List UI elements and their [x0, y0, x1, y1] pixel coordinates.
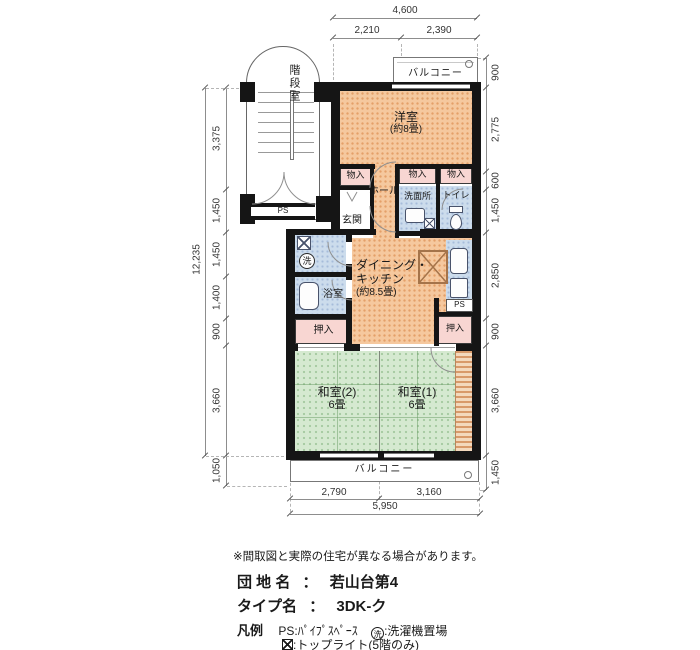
toilet-label: トイレ: [440, 190, 472, 201]
dk-line2: キッチン: [356, 272, 428, 286]
floor-plan-page: 4,600 2,210 2,390 12,235 3,375 1,450 1,4…: [0, 0, 700, 650]
stairwell-label: 階段室: [284, 52, 300, 114]
washroom-label: 洗面所: [399, 191, 436, 202]
balcony-top-label: バルコニー: [393, 68, 478, 80]
entrance-label: 玄関: [337, 215, 367, 227]
kitchen-sink-icon: [450, 248, 468, 274]
toilet-bowl-icon: [450, 214, 462, 230]
western-room-size: (約8畳): [366, 124, 446, 136]
washitsu-1-size: 6畳: [387, 399, 447, 412]
dk-line1: ダイニング・: [356, 258, 428, 272]
western-room-name: 洋室: [366, 110, 446, 124]
washitsu-1-label: 和室(1) 6畳: [387, 385, 447, 413]
kitchen-stove-icon: [450, 278, 468, 298]
toilet-tank-icon: [449, 206, 463, 213]
oshiire-label: 押入: [295, 325, 352, 337]
western-room-label: 洋室 (約8畳): [366, 110, 446, 136]
pipe-space-label: PS: [251, 206, 315, 216]
dining-kitchen-label: ダイニング・ キッチン (約8.5畳): [352, 258, 428, 299]
dk-size: (約8.5畳): [356, 287, 428, 299]
washitsu-2-name: 和室(2): [303, 385, 371, 399]
pipe-space-label: PS: [446, 300, 473, 310]
crossed-box-icon: [297, 236, 311, 250]
washitsu-1-name: 和室(1): [387, 385, 447, 399]
crossed-box-icon: [424, 218, 435, 229]
sink-icon: [405, 208, 425, 223]
oshiire-label: 押入: [438, 323, 472, 334]
washitsu-2-size: 6畳: [303, 399, 371, 412]
closet-label: 物入: [399, 169, 436, 180]
washing-machine-icon: 洗: [299, 253, 315, 269]
closet-label: 物入: [440, 169, 472, 180]
washitsu-2-label: 和室(2) 6畳: [303, 385, 371, 413]
bathroom-label: 浴室: [315, 289, 351, 301]
closet-label: 物入: [340, 170, 371, 181]
balcony-bottom-label: バルコニー: [290, 464, 479, 476]
